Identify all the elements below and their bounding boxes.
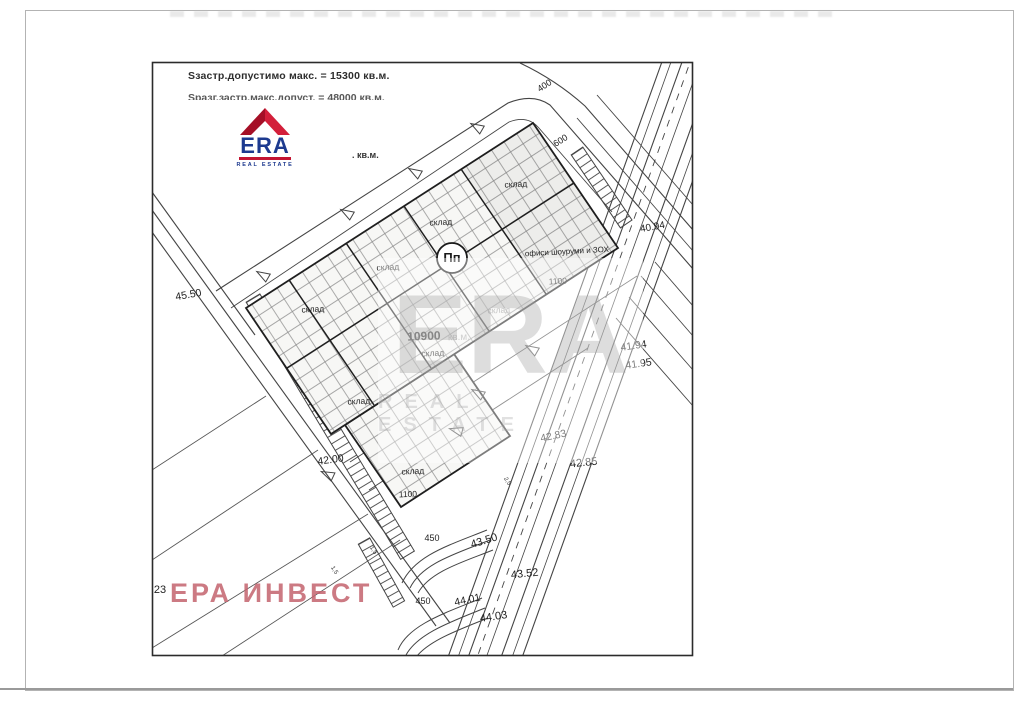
plan-label: 40.94 xyxy=(639,220,666,235)
era-invest-mark: ЕРА ИНВЕСТ xyxy=(170,578,372,609)
plan-label: 41.95 xyxy=(625,356,653,372)
plan-label: 450 xyxy=(415,596,430,606)
era-logo: ERA REAL ESTATE xyxy=(236,104,294,168)
plan-label: 43.50 xyxy=(469,531,499,551)
flow-arrow-icon xyxy=(254,268,270,282)
plan-label: склад xyxy=(487,304,510,315)
plan-label: 450 xyxy=(424,533,439,543)
era-logo-word: ERA xyxy=(236,136,294,156)
plan-label: кв.м. xyxy=(448,332,470,344)
plan-label: склад xyxy=(429,216,452,227)
plan-label: склад xyxy=(421,347,444,358)
plan-label: 43.52 xyxy=(510,567,539,582)
plan-label: 10900 xyxy=(407,328,441,343)
allowed-build-area-text: Sзастр.допустимо макс. = 15300 кв.м. xyxy=(188,70,390,82)
flow-arrow-icon xyxy=(523,342,539,356)
plan-label: 1100 xyxy=(548,276,567,287)
plan-label: Пп xyxy=(443,250,460,265)
plan-label: склад xyxy=(376,261,399,272)
plan-label: 45.50 xyxy=(174,287,202,303)
plan-label: склад xyxy=(504,178,527,189)
site-plan-svg: складскладскладскладскладскладскладсклад… xyxy=(0,0,1024,723)
plan-label: 41.94 xyxy=(620,338,648,354)
plan-label: 1,5 xyxy=(329,565,339,576)
plan-label: 600 xyxy=(551,132,569,148)
plan-label: 44.03 xyxy=(479,609,508,625)
scanned-site-plan-page: { "header": { "line1": "Sзастр.допустимо… xyxy=(0,0,1024,723)
plan-label: склад xyxy=(401,465,424,476)
plan-label: 1100 xyxy=(399,489,418,500)
plan-label: 42.85 xyxy=(569,456,598,471)
clipped-build-area-text: Sразг.застр.макс.допуст. = 48000 кв.м. xyxy=(188,92,385,100)
flow-arrow-icon xyxy=(338,206,354,220)
era-logo-subtitle: REAL ESTATE xyxy=(236,162,294,168)
plan-label: 23 xyxy=(154,584,166,596)
plan-label: склад xyxy=(301,303,324,314)
era-house-icon xyxy=(239,104,291,136)
plan-label: 42.00 xyxy=(317,452,345,468)
plan-label: склад xyxy=(347,395,370,406)
kvm-fragment-text: . кв.м. xyxy=(352,150,379,160)
plan-label: 44.01 xyxy=(453,591,481,608)
plan-label: 2,5 xyxy=(502,476,512,487)
